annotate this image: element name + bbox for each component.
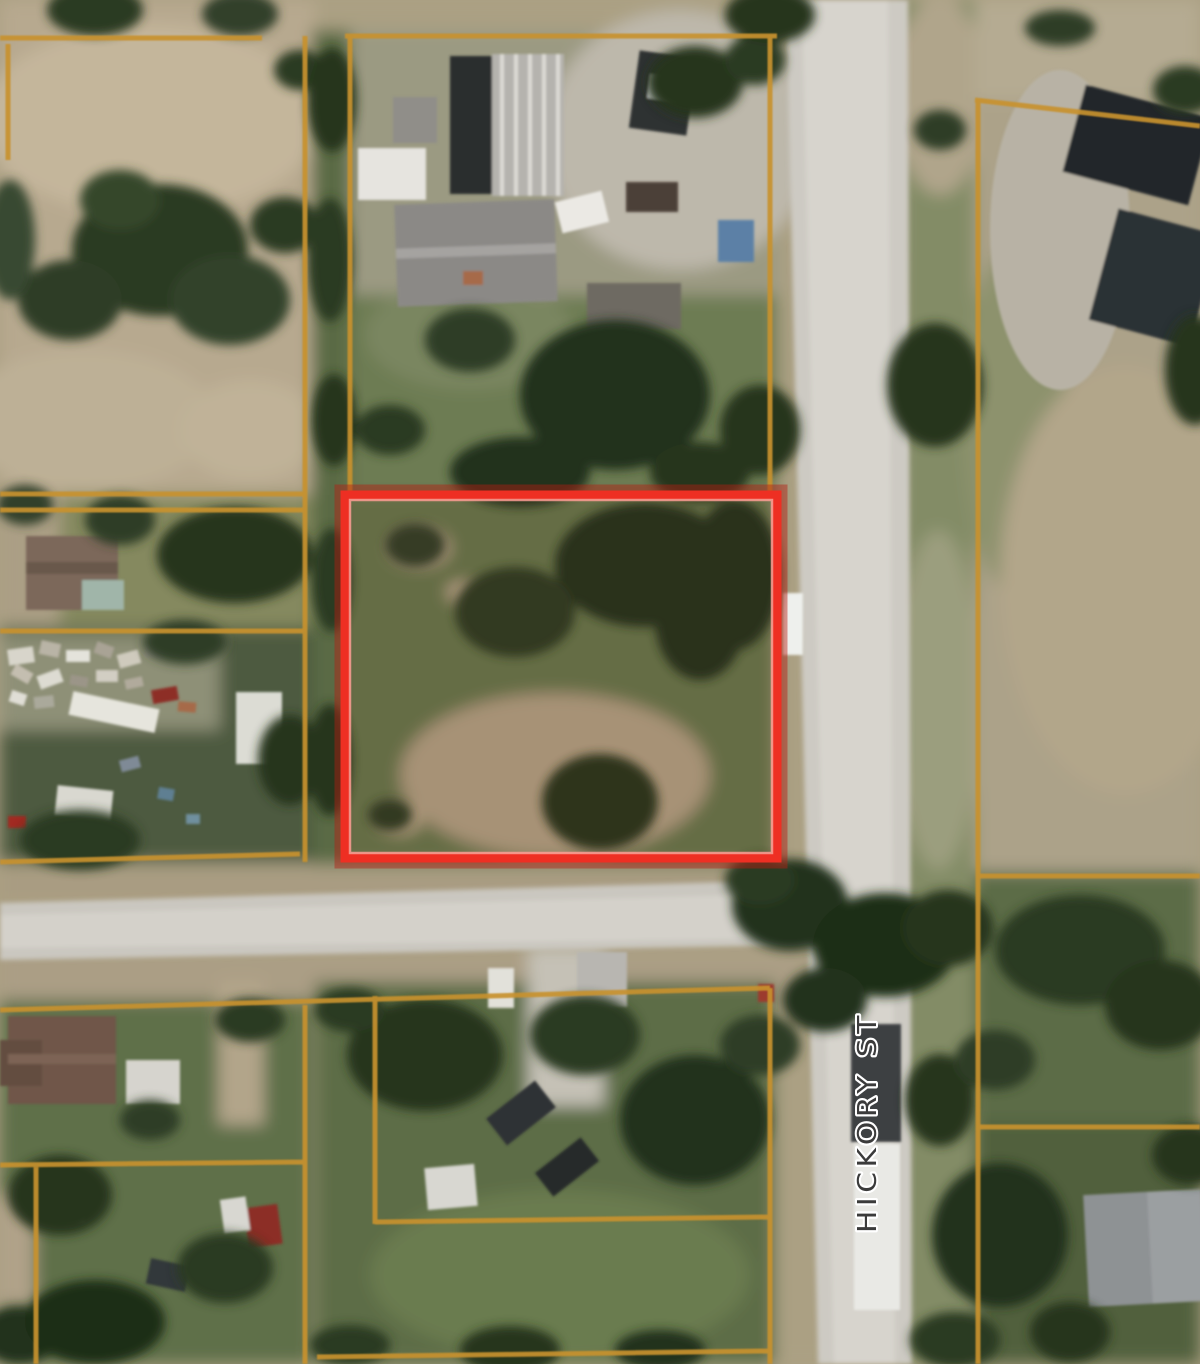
- highlighted-parcel[interactable]: [341, 491, 781, 862]
- street-label-hickory-st: HICKORY ST: [853, 1011, 883, 1233]
- satellite-map[interactable]: HICKORY ST: [0, 0, 1200, 1364]
- highlight-outline-main: [345, 495, 777, 858]
- map-viewport[interactable]: HICKORY ST: [0, 0, 1200, 1364]
